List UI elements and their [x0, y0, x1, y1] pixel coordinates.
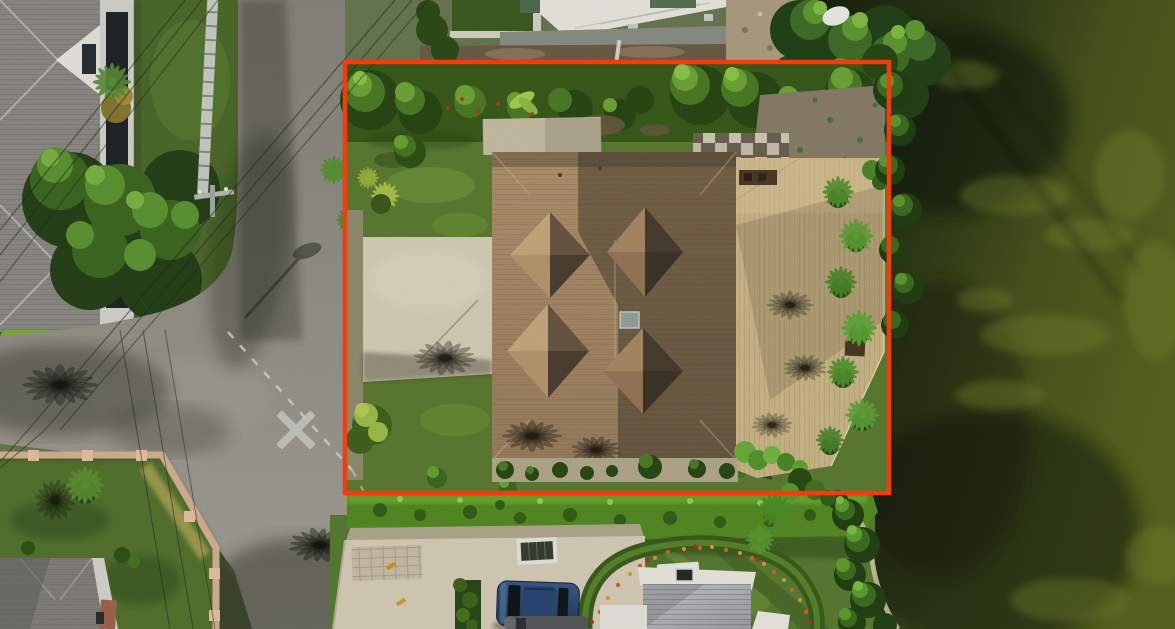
screenshot-root	[0, 0, 1175, 629]
photo-grain	[0, 0, 1175, 629]
aerial-photo	[0, 0, 1175, 629]
